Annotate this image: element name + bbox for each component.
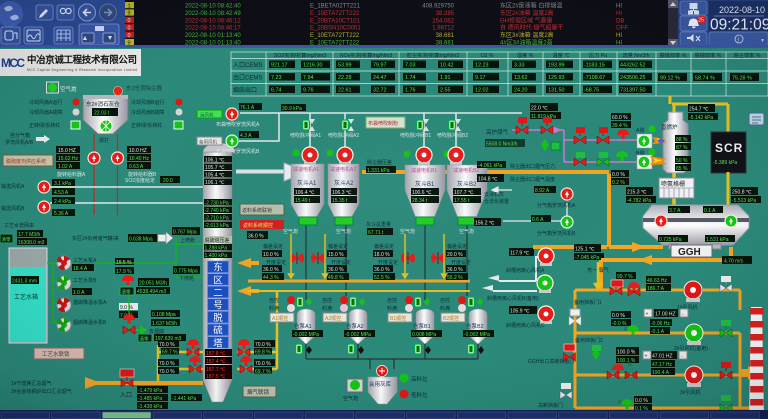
- svg-text:E_20BSN10C0001: E_20BSN10C0001: [310, 26, 361, 32]
- svg-text:A2顺控: A2顺控: [325, 315, 341, 322]
- svg-text:温度 ℃: 温度 ℃: [552, 51, 569, 59]
- svg-text:HI: HI: [616, 33, 622, 39]
- svg-text:10.0 %: 10.0 %: [263, 252, 279, 258]
- svg-text:24.20: 24.20: [514, 88, 528, 94]
- svg-text:36.0 %: 36.0 %: [328, 267, 344, 273]
- svg-text:冷却风扇B运行: 冷却风扇B运行: [131, 99, 164, 106]
- svg-text:A1顺控: A1顺控: [272, 315, 288, 322]
- svg-text:-2.710 kPa: -2.710 kPa: [205, 216, 229, 222]
- svg-text:减速电机B2: 减速电机B2: [453, 167, 479, 174]
- svg-text:-68.75: -68.75: [584, 88, 599, 94]
- svg-text:中冶京诚工程技术有限公司: 中冶京诚工程技术有限公司: [27, 54, 137, 66]
- svg-text:分气箱罗茨风机A: 分气箱罗茨风机A: [537, 202, 576, 209]
- svg-text:187.8 ℃: 187.8 ℃: [206, 351, 226, 357]
- svg-text:15.0 %: 15.0 %: [328, 252, 344, 258]
- svg-text:工艺水泵B: 工艺水泵B: [73, 277, 97, 284]
- svg-text:-2.730 kPa: -2.730 kPa: [205, 201, 229, 207]
- svg-text:HI: HI: [616, 4, 622, 10]
- svg-text:布袋喷吹罗茨风机A: 布袋喷吹罗茨风机A: [216, 121, 260, 128]
- svg-text:仓泵B1: 仓泵B1: [413, 322, 431, 330]
- svg-text:17.9 %: 17.9 %: [116, 269, 132, 275]
- svg-text:-4.782 kPa: -4.782 kPa: [627, 198, 651, 204]
- svg-text:106.3 ℃: 106.3 ℃: [332, 190, 352, 196]
- svg-text:60.0 %: 60.0 %: [612, 115, 628, 121]
- svg-text:灰斗总重量: 灰斗总重量: [366, 221, 391, 228]
- svg-text:-4.061 kPa: -4.061 kPa: [478, 163, 502, 169]
- svg-text:关断挡板门: 关断挡板门: [538, 402, 563, 409]
- svg-text:流量 Nm3/h: 流量 Nm3/h: [622, 51, 649, 59]
- svg-text:高炉煤气: 高炉煤气: [486, 128, 509, 136]
- svg-text:47.01 HZ: 47.01 HZ: [652, 354, 673, 360]
- svg-text:脱硫效率 %: 脱硫效率 %: [660, 51, 687, 59]
- svg-text:灰斗A1: 灰斗A1: [297, 179, 317, 187]
- svg-text:-5.142 kPa: -5.142 kPa: [689, 115, 713, 121]
- svg-text:7.03: 7.03: [405, 63, 416, 69]
- svg-text:GH修理区域 气囊量: GH修理区域 气囊量: [500, 16, 553, 24]
- svg-text:67.71 t: 67.71 t: [368, 230, 384, 236]
- svg-text:36.0 %: 36.0 %: [447, 267, 463, 273]
- svg-text:0.6 A: 0.6 A: [532, 217, 544, 223]
- svg-text:99.7 %: 99.7 %: [617, 274, 633, 280]
- svg-text:39.4 %: 39.4 %: [612, 123, 628, 129]
- svg-text:空气炮: 空气炮: [459, 228, 474, 235]
- svg-text:E_10ETA72TT222: E_10ETA72TT222: [310, 33, 360, 39]
- svg-text:1.98712: 1.98712: [432, 26, 454, 32]
- svg-text:B1顺控: B1顺控: [390, 315, 406, 322]
- svg-text:1: 1: [128, 3, 131, 9]
- svg-text:22.03 t: 22.03 t: [94, 111, 110, 117]
- svg-text:号: 号: [213, 301, 223, 312]
- svg-text:斜槽用离心风机A: 斜槽用离心风机A: [506, 267, 545, 274]
- svg-text:125.93: 125.93: [548, 75, 565, 81]
- svg-text:50 %: 50 %: [676, 158, 688, 164]
- svg-text:偏差设定: 偏差设定: [447, 243, 467, 250]
- svg-text:106.1 ℃: 106.1 ℃: [205, 180, 225, 186]
- svg-text:除尘器出口烟气压力: 除尘器出口烟气压力: [510, 163, 555, 170]
- svg-text:空气炮: 空气炮: [400, 228, 415, 235]
- svg-text:1.637 M3/h: 1.637 M3/h: [152, 321, 177, 327]
- svg-text:22.28: 22.28: [338, 75, 352, 81]
- svg-text:7.23: 7.23: [271, 75, 282, 81]
- svg-text:22.61: 22.61: [338, 88, 352, 94]
- svg-text:2.55: 2.55: [440, 88, 451, 94]
- svg-text:-0.002 MPa: -0.002 MPa: [464, 332, 490, 338]
- svg-text:开度设定: 开度设定: [266, 259, 286, 266]
- svg-text:70.0 %: 70.0 %: [159, 361, 175, 367]
- svg-text:布袋喷吹制粉: 布袋喷吹制粉: [368, 120, 398, 127]
- svg-text:215.3 ℃: 215.3 ℃: [627, 190, 647, 196]
- svg-text:开度设定: 开度设定: [451, 259, 471, 266]
- svg-text:空气炮: 空气炮: [336, 228, 351, 235]
- svg-text:12.23: 12.23: [475, 63, 489, 69]
- svg-text:入口: 入口: [120, 392, 132, 399]
- svg-text:0.108 Mpa: 0.108 Mpa: [152, 312, 176, 318]
- svg-text:清零: 清零: [122, 289, 131, 296]
- svg-text:料满: 料满: [322, 305, 332, 312]
- svg-text:偏差设定: 偏差设定: [374, 243, 394, 250]
- svg-text:106.4 ℃: 106.4 ℃: [295, 190, 315, 196]
- svg-text:烟气联锁: 烟气联锁: [247, 388, 270, 396]
- svg-text:-1.438 kPa: -1.438 kPa: [138, 404, 162, 410]
- svg-text:105.7 ℃: 105.7 ℃: [205, 165, 225, 171]
- svg-text:空气炮: 空气炮: [283, 228, 298, 235]
- svg-text:东区2#杂用储气罐I来: 东区2#杂用储气罐I来: [72, 235, 119, 242]
- svg-text:4538.494 m3: 4538.494 m3: [137, 289, 166, 295]
- svg-text:除尘器出口烟气温度: 除尘器出口烟气温度: [510, 176, 555, 183]
- svg-text:-1.479 kPa: -1.479 kPa: [138, 388, 162, 394]
- svg-text:R: R: [624, 327, 628, 333]
- svg-text:2022-08-10: 2022-08-10: [719, 5, 765, 15]
- svg-text:250.8 ℃: 250.8 ℃: [732, 190, 752, 196]
- svg-text:44.3 %: 44.3 %: [263, 275, 279, 281]
- svg-text:99.12 %: 99.12 %: [660, 75, 680, 81]
- svg-text:斜槽用离心风机B(备用): 斜槽用离心风机B(备用): [487, 295, 539, 302]
- svg-text:MCC: MCC: [1, 56, 25, 70]
- svg-text:GGH: GGH: [678, 247, 701, 258]
- svg-text:-5.389 kPa: -5.389 kPa: [713, 160, 737, 166]
- svg-text:输送风机B: 输送风机B: [1, 205, 25, 212]
- svg-text:17.7 M3/h: 17.7 M3/h: [18, 232, 40, 238]
- svg-text:190.4 A: 190.4 A: [652, 370, 670, 376]
- svg-text:69.7 %: 69.7 %: [162, 350, 178, 356]
- svg-text:喷吹脉冲阀A2: 喷吹脉冲阀A2: [328, 132, 359, 139]
- svg-text:70.0 %: 70.0 %: [159, 369, 175, 375]
- svg-text:直燃炉: 直燃炉: [661, 123, 678, 131]
- svg-text:75.28 %: 75.28 %: [732, 75, 752, 81]
- svg-text:烟囱降温水泵B: 烟囱降温水泵B: [73, 319, 107, 326]
- svg-text:-7.045 kPa: -7.045 kPa: [575, 255, 599, 261]
- svg-text:69.8 %: 69.8 %: [255, 350, 271, 356]
- svg-text:料满: 料满: [269, 305, 279, 312]
- svg-text:117.9 ℃: 117.9 ℃: [510, 251, 530, 257]
- svg-text:i: i: [738, 38, 739, 44]
- svg-text:偏差设定: 偏差设定: [328, 243, 348, 250]
- svg-text:正转绿/反转红: 正转绿/反转红: [29, 122, 60, 129]
- svg-text:喷吹脉冲阀B2: 喷吹脉冲阀B2: [437, 132, 468, 139]
- svg-text:减速电机A2: 减速电机A2: [330, 166, 356, 173]
- svg-text:粒尘实测/折算mg/Nm3: 粒尘实测/折算mg/Nm3: [407, 51, 459, 59]
- svg-text:上喷枪: 上喷枪: [180, 237, 195, 244]
- svg-text:DB: DB: [616, 18, 624, 24]
- svg-text:冷却风扇B故障: 冷却风扇B故障: [131, 109, 164, 116]
- svg-text:开度设定: 开度设定: [378, 259, 398, 266]
- svg-text:-0.06 Hz: -0.06 Hz: [651, 321, 670, 327]
- svg-text:0.1 A: 0.1 A: [704, 208, 716, 214]
- svg-text:+: +: [645, 354, 648, 360]
- svg-text:斜槽用离心风机C: 斜槽用离心风机C: [506, 322, 545, 329]
- svg-text:85 %: 85 %: [676, 166, 688, 172]
- svg-text:47.17 Hz: 47.17 Hz: [652, 362, 673, 368]
- svg-text:0.767 Mpa: 0.767 Mpa: [173, 230, 197, 236]
- svg-text:喷吹脉冲阀B1: 喷吹脉冲阀B1: [400, 132, 431, 139]
- svg-text:15.49 t: 15.49 t: [295, 198, 311, 204]
- svg-text:186.7 A: 186.7 A: [647, 286, 665, 292]
- svg-text:冷却风扇A故障: 冷却风扇A故障: [29, 109, 62, 116]
- svg-text:MCC Capital Engineering & Rese: MCC Capital Engineering & Research Incor…: [27, 68, 137, 72]
- svg-text:18.4 A: 18.4 A: [73, 266, 88, 272]
- svg-text:-5.513 kPa: -5.513 kPa: [732, 198, 756, 204]
- svg-text:3#引风机: 3#引风机: [680, 389, 701, 396]
- svg-text:10.42: 10.42: [440, 63, 454, 69]
- svg-text:脱: 脱: [213, 312, 223, 324]
- svg-text:0: 0: [128, 33, 131, 39]
- svg-text:46.63 Hz: 46.63 Hz: [647, 278, 668, 284]
- svg-text:2.4 kPa: 2.4 kPa: [54, 199, 71, 205]
- svg-text:会用灰库: 会用灰库: [369, 380, 392, 388]
- svg-text:SO2实测/折算mg/Nm3: SO2实测/折算mg/Nm3: [274, 51, 326, 59]
- svg-text:旋转给料器A: 旋转给料器A: [57, 171, 86, 178]
- svg-text:正转绿/反转红: 正转绿/反转红: [131, 122, 162, 129]
- svg-text:5.36 A: 5.36 A: [54, 211, 69, 217]
- svg-text:旋转给料器B: 旋转给料器B: [128, 171, 157, 178]
- svg-text:开度设定: 开度设定: [331, 259, 351, 266]
- svg-text:喷吹脉冲阀A1: 喷吹脉冲阀A1: [290, 132, 321, 139]
- svg-text:低料位: 低料位: [411, 391, 428, 399]
- svg-text:09:21:09: 09:21:09: [710, 17, 768, 34]
- svg-text:去消石灰: 去消石灰: [484, 191, 504, 198]
- svg-text:731397.50: 731397.50: [620, 88, 645, 94]
- svg-text:2022-08-10 08:42:49: 2022-08-10 08:42:49: [185, 11, 241, 17]
- svg-text:东区2#油箱 温度2高: 东区2#油箱 温度2高: [500, 9, 554, 17]
- svg-text:脱硝效率 %: 脱硝效率 %: [695, 51, 722, 59]
- svg-text:16308.0 m3: 16308.0 m3: [18, 240, 45, 246]
- svg-text:东区2#废液箱 白排烟温: 东区2#废液箱 白排烟温: [500, 2, 562, 10]
- svg-text:187.5 ℃: 187.5 ℃: [206, 374, 226, 380]
- svg-text:0: 0: [128, 26, 131, 32]
- svg-text:2022-08-10 01:13:40: 2022-08-10 01:13:40: [185, 33, 241, 39]
- svg-text:36.0 %: 36.0 %: [374, 267, 390, 273]
- svg-text:备用风机: 备用风机: [199, 139, 217, 146]
- svg-text:193.99: 193.99: [548, 63, 565, 69]
- svg-text:-1183.15: -1183.15: [584, 63, 605, 69]
- svg-text:0.0 %: 0.0 %: [612, 172, 625, 178]
- svg-text:E_20BTA10CT101: E_20BTA10CT101: [310, 18, 361, 24]
- svg-text:振打: 振打: [99, 137, 109, 144]
- svg-text:12.02: 12.02: [475, 88, 489, 94]
- svg-text:30.9 kPa: 30.9 kPa: [282, 106, 302, 112]
- svg-text:灰斗B2: 灰斗B2: [457, 180, 477, 188]
- svg-text:156.2 ℃: 156.2 ℃: [475, 221, 495, 227]
- svg-text:高料位: 高料位: [411, 375, 428, 383]
- svg-text:0.725 kPa: 0.725 kPa: [659, 237, 682, 243]
- svg-text:15.62 Hz: 15.62 Hz: [58, 156, 79, 162]
- svg-text:20.051 M3/h: 20.051 M3/h: [139, 281, 167, 287]
- svg-text:0.2 %: 0.2 %: [612, 180, 625, 186]
- svg-text:5508.0 Nm3/h: 5508.0 Nm3/h: [486, 142, 518, 148]
- svg-text:工艺水联锁: 工艺水联锁: [42, 350, 70, 358]
- svg-text:22.0 ℃: 22.0 ℃: [531, 106, 548, 112]
- svg-text:70.0 %: 70.0 %: [159, 342, 175, 348]
- svg-text:-7108.67: -7108.67: [584, 75, 605, 81]
- svg-text:0.008 MPa: 0.008 MPa: [412, 332, 436, 338]
- svg-text:2022-08-10 08:46:12: 2022-08-10 08:46:12: [185, 18, 241, 24]
- svg-text:20.0: 20.0: [163, 178, 173, 184]
- svg-text:3.33: 3.33: [514, 63, 525, 69]
- svg-text:0.0 %: 0.0 %: [635, 398, 648, 404]
- svg-text:-0.002 MPa: -0.002 MPa: [293, 332, 319, 338]
- svg-text:出口: 出口: [211, 191, 224, 200]
- svg-text:4.53 A: 4.53 A: [54, 190, 69, 196]
- svg-text:料满: 料满: [440, 305, 450, 312]
- svg-text:HI: HI: [616, 11, 622, 17]
- svg-text:出口CEMS: 出口CEMS: [233, 74, 262, 82]
- svg-text:东2#消石灰仓: 东2#消石灰仓: [86, 100, 120, 108]
- svg-text:921.17: 921.17: [271, 63, 288, 69]
- svg-text:38.285: 38.285: [436, 11, 455, 17]
- svg-text:100.0 %: 100.0 %: [617, 350, 636, 356]
- svg-text:9.0 %: 9.0 %: [120, 305, 133, 311]
- svg-text:▼: ▼: [760, 38, 765, 44]
- svg-text:自 德风时代 烟气超量干: 自 德风时代 烟气超量干: [500, 24, 563, 32]
- svg-text:R: R: [628, 362, 632, 368]
- svg-text:料满: 料满: [387, 305, 397, 312]
- svg-text:O2 %: O2 %: [481, 53, 494, 59]
- svg-text:SO2浓度给定: SO2浓度给定: [125, 177, 155, 184]
- svg-text:32.72: 32.72: [373, 88, 387, 94]
- svg-text:105.9 ℃: 105.9 ℃: [510, 309, 530, 315]
- svg-text:13.62: 13.62: [514, 75, 528, 81]
- svg-text:2022-08-10 08:46:17: 2022-08-10 08:46:17: [185, 26, 241, 32]
- svg-text:偏差设定: 偏差设定: [263, 243, 283, 250]
- svg-text:除尘器压差: 除尘器压差: [367, 159, 392, 166]
- svg-text:仓泵A2: 仓泵A2: [346, 322, 364, 330]
- svg-text:GGH出口关断挡板门: GGH出口关断挡板门: [528, 358, 574, 365]
- svg-text:9.76: 9.76: [303, 88, 314, 94]
- svg-text:脱硫塔压差: 脱硫塔压差: [205, 237, 230, 244]
- svg-text:SCR: SCR: [715, 141, 743, 155]
- svg-text:100.6 ℃: 100.6 ℃: [412, 190, 432, 196]
- svg-text:443262.52: 443262.52: [620, 63, 645, 69]
- svg-text:17.55 t: 17.55 t: [454, 198, 470, 204]
- svg-text:9.17: 9.17: [475, 75, 486, 81]
- svg-text:53.99: 53.99: [338, 63, 352, 69]
- svg-text:1.331 kPa: 1.331 kPa: [367, 168, 390, 174]
- svg-text:2#台余热锅炉出口汇总烟气: 2#台余热锅炉出口汇总烟气: [11, 388, 72, 395]
- svg-text:3.1 kPa: 3.1 kPa: [54, 181, 71, 187]
- svg-text:52.5 %: 52.5 %: [374, 275, 390, 281]
- svg-text:36.0 %: 36.0 %: [248, 234, 264, 240]
- svg-text:清零: 清零: [140, 336, 149, 343]
- svg-text:2022-08-10 08:42:40: 2022-08-10 08:42:40: [185, 4, 241, 10]
- svg-text:3.7 A: 3.7 A: [669, 208, 681, 214]
- svg-text:返料系统顺控: 返料系统顺控: [243, 222, 273, 229]
- svg-text:104.8 ℃: 104.8 ℃: [478, 177, 498, 183]
- svg-text:OFF: OFF: [616, 26, 628, 32]
- svg-text:下喷枪: 下喷枪: [179, 275, 194, 282]
- svg-text:1.400 kPa: 1.400 kPa: [205, 253, 228, 259]
- svg-text:+: +: [646, 312, 649, 318]
- svg-text:清零: 清零: [2, 236, 11, 243]
- svg-text:压力 Pa: 压力 Pa: [589, 51, 607, 59]
- svg-text:仓流化装置: 仓流化装置: [484, 198, 509, 205]
- svg-text:E_1BETA02TT221: E_1BETA02TT221: [310, 4, 361, 10]
- svg-text:25: 25: [698, 18, 704, 24]
- svg-text:喷氨格栅: 喷氨格栅: [661, 180, 685, 188]
- svg-text:28.34 t: 28.34 t: [412, 198, 428, 204]
- svg-text:0: 0: [128, 18, 131, 24]
- svg-text:88 %: 88 %: [676, 137, 688, 143]
- svg-text:工艺水箱: 工艺水箱: [14, 293, 38, 301]
- svg-text:2431.3 mm: 2431.3 mm: [12, 279, 37, 285]
- svg-text:100.1 %: 100.1 %: [617, 358, 636, 364]
- svg-text:187.4 ℃: 187.4 ℃: [206, 359, 226, 365]
- svg-text:125.1 ℃: 125.1 ℃: [575, 247, 595, 253]
- svg-text:B2顺控: B2顺控: [443, 315, 459, 322]
- svg-text:49.8 %: 49.8 %: [328, 275, 344, 281]
- svg-text:1.02 A: 1.02 A: [58, 164, 73, 170]
- svg-text:A侧: A侧: [636, 127, 644, 134]
- svg-text:备用挡板门1: 备用挡板门1: [574, 299, 602, 306]
- svg-text:E_10ETA72TT222: E_10ETA72TT222: [310, 11, 360, 17]
- svg-text:107.7 ℃: 107.7 ℃: [454, 190, 474, 196]
- svg-text:1.74: 1.74: [405, 75, 416, 81]
- svg-text:1.91: 1.91: [440, 75, 451, 81]
- svg-text:1.288 kPa: 1.288 kPa: [205, 246, 228, 252]
- svg-text:自分气箱: 自分气箱: [10, 132, 30, 139]
- svg-text:1#干熄焦汇总烟气: 1#干熄焦汇总烟气: [11, 380, 52, 387]
- svg-text:NOx实测/折算mg/Nm3: NOx实测/折算mg/Nm3: [340, 51, 392, 59]
- svg-text:-2.740 kPa: -2.740 kPa: [205, 208, 229, 214]
- svg-text:154.082: 154.082: [432, 18, 454, 24]
- svg-text:烟囱降温水泵A: 烟囱降温水泵A: [73, 299, 107, 306]
- svg-text:自控: 自控: [322, 297, 332, 304]
- svg-text:工艺水泵A: 工艺水泵A: [73, 257, 97, 264]
- svg-text:79.97: 79.97: [373, 63, 387, 69]
- svg-text:6.74: 6.74: [271, 88, 282, 94]
- svg-text:4.70 m/s: 4.70 m/s: [724, 259, 744, 265]
- svg-text:自控: 自控: [269, 297, 279, 304]
- svg-text:返料系统联锁: 返料系统联锁: [242, 207, 272, 214]
- svg-text:10.0 HZ: 10.0 HZ: [129, 148, 147, 154]
- svg-text:运风机: 运风机: [200, 112, 214, 119]
- svg-text:55.2 %: 55.2 %: [447, 275, 463, 281]
- svg-text:湿度 %: 湿度 %: [517, 51, 534, 59]
- svg-text:备用挡板门2: 备用挡板门2: [575, 337, 603, 344]
- svg-text:9: 9: [128, 11, 131, 17]
- svg-text:15.35 t: 15.35 t: [332, 198, 348, 204]
- svg-text:76.1 A: 76.1 A: [240, 105, 255, 111]
- svg-text:塔: 塔: [213, 337, 223, 349]
- svg-text:36.0 %: 36.0 %: [263, 267, 279, 273]
- svg-text:减速电机B1: 减速电机B1: [411, 167, 437, 174]
- svg-text:减速电机A1: 减速电机A1: [293, 166, 319, 173]
- svg-text:-1.485 kPa: -1.485 kPa: [138, 396, 162, 402]
- svg-text:1.76: 1.76: [405, 88, 416, 94]
- svg-text:7.94: 7.94: [303, 75, 314, 81]
- svg-text:灰斗B1: 灰斗B1: [415, 180, 435, 188]
- svg-text:10.40 Hz: 10.40 Hz: [129, 156, 150, 162]
- svg-text:254.7 ℃: 254.7 ℃: [689, 107, 709, 113]
- svg-text:R: R: [641, 284, 645, 290]
- svg-text:区: 区: [213, 275, 223, 286]
- svg-text:二: 二: [213, 288, 223, 299]
- svg-text:空气炮: 空气炮: [343, 395, 358, 402]
- svg-text:-2.613 kPa: -2.613 kPa: [205, 223, 229, 229]
- svg-text:仓泵B2: 仓泵B2: [466, 322, 484, 330]
- svg-text:18.0 %: 18.0 %: [374, 252, 390, 258]
- svg-text:38.681: 38.681: [436, 33, 455, 39]
- svg-text:除尘效率 %: 除尘效率 %: [734, 51, 761, 59]
- svg-text:-0.002 MPa: -0.002 MPa: [345, 332, 371, 338]
- svg-text:70.0 %: 70.0 %: [255, 361, 271, 367]
- svg-text:东区3#油箱 温度2高: 东区3#油箱 温度2高: [500, 31, 554, 39]
- svg-text:8.92 A: 8.92 A: [535, 188, 550, 194]
- svg-text:输送风机A: 输送风机A: [1, 183, 25, 190]
- svg-text:24.47: 24.47: [373, 75, 387, 81]
- svg-text:冷却风扇A运行: 冷却风扇A运行: [29, 99, 62, 106]
- svg-text:烟囱出口: 烟囱出口: [233, 86, 257, 94]
- svg-text:69.7 %: 69.7 %: [255, 369, 271, 375]
